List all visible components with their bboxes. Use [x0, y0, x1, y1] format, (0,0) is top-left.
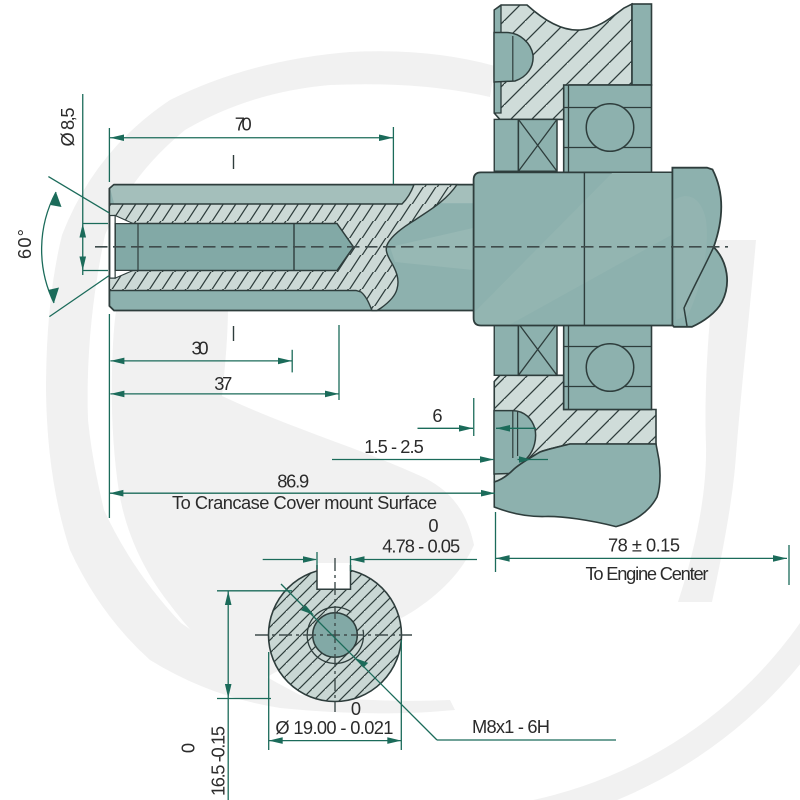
svg-text:70: 70	[235, 114, 252, 135]
svg-text:4.78 - 0.05: 4.78 - 0.05	[382, 535, 460, 556]
svg-text:M8x1 - 6H: M8x1 - 6H	[472, 716, 550, 737]
svg-text:To Engine Center: To Engine Center	[586, 563, 709, 584]
svg-text:0: 0	[351, 698, 361, 719]
svg-text:0: 0	[178, 743, 199, 753]
svg-text:16.5 -0.15: 16.5 -0.15	[208, 726, 229, 796]
svg-text:78 ± 0.15: 78 ± 0.15	[608, 535, 680, 556]
svg-text:To Crancase Cover mount Surfac: To Crancase Cover mount Surface	[172, 492, 437, 513]
svg-text:Ø 19.00 - 0.021: Ø 19.00 - 0.021	[275, 717, 393, 738]
svg-text:60°: 60°	[14, 229, 35, 259]
svg-text:6: 6	[432, 405, 442, 426]
svg-text:0: 0	[428, 515, 438, 536]
svg-text:Ø 8,5: Ø 8,5	[57, 108, 78, 147]
svg-text:30: 30	[192, 338, 209, 359]
svg-text:1.5 - 2.5: 1.5 - 2.5	[364, 436, 424, 457]
svg-text:37: 37	[214, 373, 232, 394]
svg-text:86.9: 86.9	[277, 471, 309, 492]
